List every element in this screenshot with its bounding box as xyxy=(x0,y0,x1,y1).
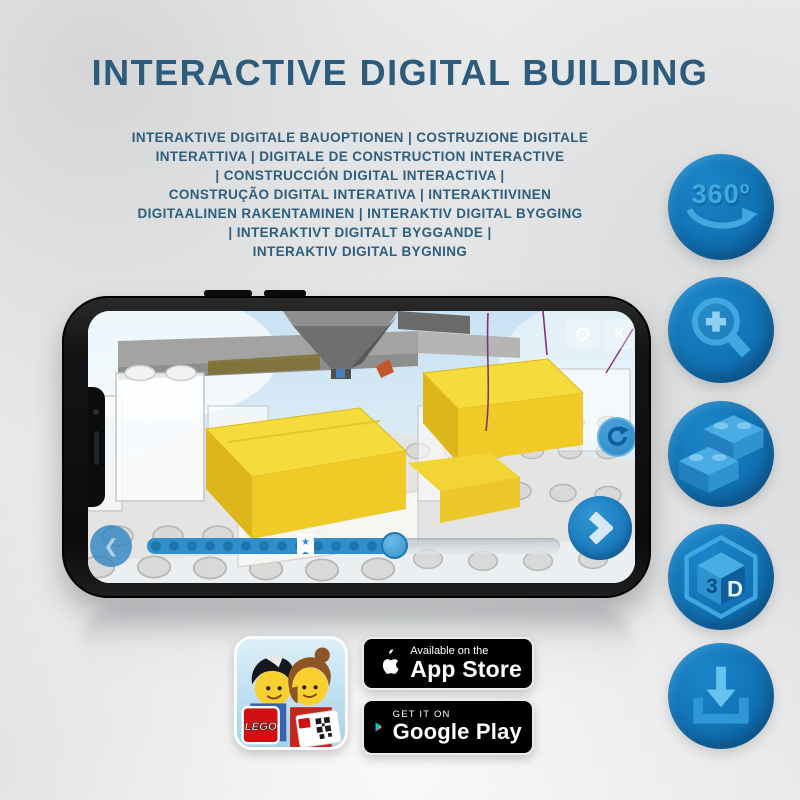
feature-bricks-icon xyxy=(668,401,774,507)
app-store-badge[interactable]: Available on the App Store xyxy=(362,637,534,690)
slider-thumb[interactable] xyxy=(381,532,408,559)
lego-app-icon[interactable]: LEGO xyxy=(234,636,348,750)
subtitle-line: INTERATTIVA | DIGITALE DE CONSTRUCTION I… xyxy=(70,147,650,166)
subtitle-line: | CONSTRUCCIÓN DIGITAL INTERACTIVA | xyxy=(70,166,650,185)
close-icon: ✕ xyxy=(612,324,626,344)
marketing-image: INTERACTIVE DIGITAL BUILDING INTERAKTIVE… xyxy=(0,0,800,800)
svg-text:D: D xyxy=(727,576,743,601)
download-arrow-icon xyxy=(681,657,761,735)
phone-reflection xyxy=(80,606,634,684)
google-play-name: Google Play xyxy=(393,720,522,743)
subtitle-line: INTERAKTIVE DIGITALE BAUOPTIONEN | COSTR… xyxy=(70,128,650,147)
feature-360-rotation-icon: 360º xyxy=(668,154,774,260)
svg-text:3: 3 xyxy=(706,575,718,598)
lego-app-art: LEGO xyxy=(237,639,345,747)
rotate-model-button[interactable] xyxy=(597,417,635,457)
phone-notch xyxy=(88,387,105,507)
multilingual-subtitle: INTERAKTIVE DIGITALE BAUOPTIONEN | COSTR… xyxy=(70,128,650,261)
rotation-arrow-icon xyxy=(681,206,761,236)
star-icon: ★ xyxy=(301,537,310,548)
lego-bricks-icon xyxy=(675,411,767,497)
previous-step-button[interactable]: ❮ xyxy=(90,525,132,567)
chevron-left-icon: ❮ xyxy=(103,536,118,557)
apple-icon xyxy=(374,647,401,681)
camera-dot xyxy=(93,409,99,415)
phone-volume-button xyxy=(204,290,252,297)
app-store-name: App Store xyxy=(410,657,522,681)
page-title: INTERACTIVE DIGITAL BUILDING xyxy=(0,52,800,94)
feature-3d-icon: 3 D xyxy=(668,524,774,630)
speaker-slit xyxy=(94,431,99,465)
feature-zoom-icon xyxy=(668,277,774,383)
3d-cube-icon: 3 D xyxy=(677,533,765,621)
build-progress-slider[interactable]: ★ xyxy=(147,538,560,554)
close-button[interactable]: ✕ xyxy=(604,319,634,349)
settings-gear-button[interactable]: ⚙ xyxy=(566,319,600,349)
magnifier-plus-icon xyxy=(679,288,763,372)
subtitle-line: INTERAKTIV DIGITAL BYGNING xyxy=(70,242,650,261)
subtitle-line: CONSTRUÇÃO DIGITAL INTERATIVA | INTERAKT… xyxy=(70,185,650,204)
svg-text:LEGO: LEGO xyxy=(245,721,277,733)
gear-icon: ⚙ xyxy=(574,322,592,346)
refresh-icon xyxy=(605,425,629,449)
google-play-badge[interactable]: GET IT ON Google Play xyxy=(362,699,534,755)
phone-volume-button xyxy=(264,290,306,297)
subtitle-line: DIGITAALINEN RAKENTAMINEN | INTERAKTIV D… xyxy=(70,204,650,223)
slider-fill xyxy=(147,538,403,554)
next-step-button[interactable] xyxy=(568,496,632,560)
chevron-right-icon xyxy=(587,512,613,544)
feature-download-icon xyxy=(668,643,774,749)
app-screen: ⚙ ✕ ❮ ★ xyxy=(88,311,635,583)
google-play-icon xyxy=(374,712,384,742)
subtitle-line: | INTERAKTIVT DIGITALT BYGGANDE | xyxy=(70,223,650,242)
